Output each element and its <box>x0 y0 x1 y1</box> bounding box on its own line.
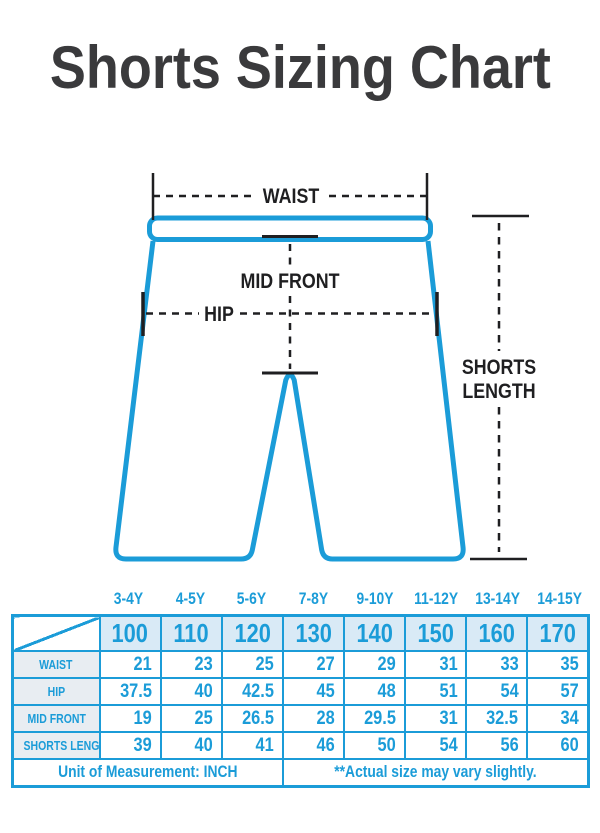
page-title-text: Shorts Sizing Chart <box>49 33 550 102</box>
table-cell: 54 <box>466 678 527 705</box>
waist-label: WAIST <box>263 185 320 209</box>
age-header: 5-6Y <box>221 590 283 612</box>
table-cell: 31 <box>405 705 466 732</box>
row-label: HIP <box>13 678 100 705</box>
size-cell: 170 <box>527 616 588 652</box>
table-cell: 26.5 <box>222 705 283 732</box>
table-cell: 48 <box>344 678 405 705</box>
table-cell: 45 <box>283 678 344 705</box>
row-label: WAIST <box>13 651 100 678</box>
table-cell: 21 <box>100 651 161 678</box>
table-cell: 40 <box>161 732 222 759</box>
table-cell: 42.5 <box>222 678 283 705</box>
size-cell: 130 <box>283 616 344 652</box>
age-header: 4-5Y <box>160 590 222 612</box>
age-header: 7-8Y <box>283 590 345 612</box>
size-cell: 110 <box>161 616 222 652</box>
table-cell: 35 <box>527 651 588 678</box>
table-cell: 31 <box>405 651 466 678</box>
age-header: 11-12Y <box>406 590 468 612</box>
age-header: 3-4Y <box>98 590 160 612</box>
table-cell: 34 <box>527 705 588 732</box>
size-cell: 120 <box>222 616 283 652</box>
row-label: MID FRONT <box>13 705 100 732</box>
shorts-sizing-chart-page: Shorts Sizing Chart WAIST MID FRONT HIP … <box>0 0 600 833</box>
diagonal-corner-cell <box>13 616 100 652</box>
size-cell: 100 <box>100 616 161 652</box>
table-cell: 25 <box>222 651 283 678</box>
table-cell: 25 <box>161 705 222 732</box>
age-header: 14-15Y <box>529 590 591 612</box>
table-cell: 60 <box>527 732 588 759</box>
table-cell: 29.5 <box>344 705 405 732</box>
table-cell: 46 <box>283 732 344 759</box>
shorts-length-row: SHORTS LENGTH 39 40 41 46 50 54 56 60 <box>13 732 589 759</box>
table-cell: 37.5 <box>100 678 161 705</box>
size-disclaimer-cell: **Actual size may vary slightly. <box>283 759 589 787</box>
row-label: SHORTS LENGTH <box>13 732 100 759</box>
table-cell: 41 <box>222 732 283 759</box>
table-cell: 56 <box>466 732 527 759</box>
unit-of-measurement-cell: Unit of Measurement: INCH <box>13 759 283 787</box>
table-cell: 51 <box>405 678 466 705</box>
sizing-table: 100 110 120 130 140 150 160 170 WAIST 21… <box>11 614 590 788</box>
size-cell: 150 <box>405 616 466 652</box>
table-cell: 40 <box>161 678 222 705</box>
age-header: 9-10Y <box>344 590 406 612</box>
table-footer-row: Unit of Measurement: INCH **Actual size … <box>13 759 589 787</box>
age-header-spacer <box>11 609 98 612</box>
hip-row: HIP 37.5 40 42.5 45 48 51 54 57 <box>13 678 589 705</box>
shorts-diagram: WAIST MID FRONT HIP SHORTS LENGTH <box>0 140 600 595</box>
age-header-row: 3-4Y 4-5Y 5-6Y 7-8Y 9-10Y 11-12Y 13-14Y … <box>11 586 590 612</box>
table-cell: 23 <box>161 651 222 678</box>
table-cell: 54 <box>405 732 466 759</box>
table-cell: 50 <box>344 732 405 759</box>
table-cell: 28 <box>283 705 344 732</box>
table-cell: 32.5 <box>466 705 527 732</box>
table-cell: 39 <box>100 732 161 759</box>
shorts-length-label-line1: SHORTS <box>462 356 536 380</box>
table-cell: 19 <box>100 705 161 732</box>
mid-front-row: MID FRONT 19 25 26.5 28 29.5 31 32.5 34 <box>13 705 589 732</box>
table-cell: 33 <box>466 651 527 678</box>
size-cell: 140 <box>344 616 405 652</box>
table-cell: 57 <box>527 678 588 705</box>
size-header-row: 100 110 120 130 140 150 160 170 <box>13 616 589 652</box>
age-header: 13-14Y <box>467 590 529 612</box>
page-title: Shorts Sizing Chart <box>0 28 600 106</box>
shorts-length-label-line2: LENGTH <box>462 380 535 404</box>
waist-row: WAIST 21 23 25 27 29 31 33 35 <box>13 651 589 678</box>
mid-front-label: MID FRONT <box>240 270 339 294</box>
table-cell: 29 <box>344 651 405 678</box>
table-cell: 27 <box>283 651 344 678</box>
hip-label: HIP <box>204 303 234 327</box>
size-cell: 160 <box>466 616 527 652</box>
